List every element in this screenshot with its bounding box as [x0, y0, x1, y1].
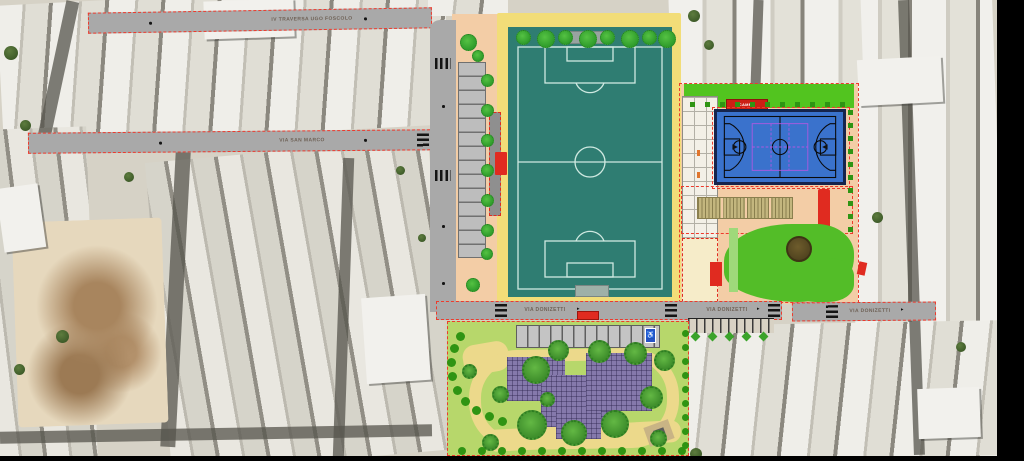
- pergola-gap: [769, 198, 771, 218]
- pergola-gap: [745, 198, 747, 218]
- east-green-strip: [729, 228, 738, 292]
- earth-mound: [786, 236, 812, 262]
- satellite-tree: [124, 172, 134, 182]
- satellite-tree: [396, 166, 405, 175]
- satellite-building: [857, 56, 943, 106]
- crosswalk: [826, 305, 838, 318]
- street-label: IV TRAVERSA UGO FOSCOLO: [247, 15, 377, 23]
- floorplan-marker: [697, 172, 700, 178]
- crosswalk: [768, 304, 780, 317]
- floorplan-marker: [697, 150, 700, 156]
- manhole-dot: [149, 22, 152, 25]
- satellite-tree: [956, 342, 966, 352]
- park-bench: [653, 427, 666, 437]
- street-label: VIA SAN MARCO: [257, 137, 347, 144]
- east-tribune: [818, 189, 830, 229]
- west-tribune-entrance: [495, 152, 507, 175]
- crosswalk: [417, 133, 429, 147]
- street-label: VIA DONIZETTI: [699, 307, 755, 313]
- satellite-tree: [14, 364, 25, 375]
- manhole-dot: [442, 105, 445, 108]
- manhole-dot: [364, 139, 367, 142]
- satellite-tree: [688, 10, 700, 22]
- satellite-building: [917, 387, 981, 439]
- west-parking-stalls: [458, 62, 486, 258]
- satellite-tree: [20, 120, 31, 131]
- field-north-stand: [570, 31, 610, 44]
- annex-entrance: [710, 262, 722, 286]
- satellite-tree: [418, 234, 426, 242]
- street-via-san-marco: VIA SAN MARCO: [28, 129, 440, 154]
- street-label: VIA DONIZETTI: [841, 308, 899, 314]
- satellite-tree: [56, 330, 69, 343]
- crosswalk: [665, 304, 677, 317]
- satellite-tree: [4, 46, 18, 60]
- dirt-lot: [11, 217, 168, 427]
- public-park: ♿: [447, 321, 689, 456]
- court-markings: [717, 112, 843, 182]
- satellite-tree: [704, 40, 714, 50]
- field-south-stand: [575, 285, 609, 297]
- letterbox-bottom: [0, 456, 1024, 461]
- soccer-field: [508, 27, 672, 297]
- pergola-gap: [721, 198, 723, 218]
- park-building-roof: [556, 411, 601, 439]
- crosswalk: [435, 58, 451, 69]
- direction-arrow-icon: ▸: [757, 306, 760, 312]
- manhole-dot: [442, 282, 445, 285]
- crosswalk: [435, 170, 451, 181]
- park-building-roof: [586, 353, 652, 411]
- street-via-donizetti-east: VIA DONIZETTI ▸: [792, 301, 936, 321]
- satellite-tree: [872, 212, 883, 223]
- access-road: [430, 20, 456, 312]
- direction-arrow-icon: ▸: [901, 307, 904, 313]
- raised-crossing: [577, 311, 599, 320]
- street-parking-comb: [688, 318, 774, 333]
- east-lawn-south2: [790, 258, 854, 302]
- manhole-dot: [159, 142, 162, 145]
- letterbox-right: [997, 0, 1024, 461]
- court-apron: [714, 109, 846, 185]
- street-label: VIA DONIZETTI: [515, 307, 575, 313]
- masterplan-aerial-map: CAMPO POLIVALENTE: [0, 0, 1024, 461]
- manhole-dot: [442, 225, 445, 228]
- satellite-building: [361, 294, 431, 384]
- manhole-dot: [364, 17, 367, 20]
- park-parking-stalls: [516, 325, 660, 348]
- crosswalk: [495, 304, 507, 317]
- soccer-field-markings: [508, 27, 672, 297]
- court-boundary: [712, 107, 850, 189]
- pergola: [697, 197, 793, 219]
- basketball-court: [717, 112, 843, 182]
- disabled-parking-icon: ♿: [645, 328, 656, 343]
